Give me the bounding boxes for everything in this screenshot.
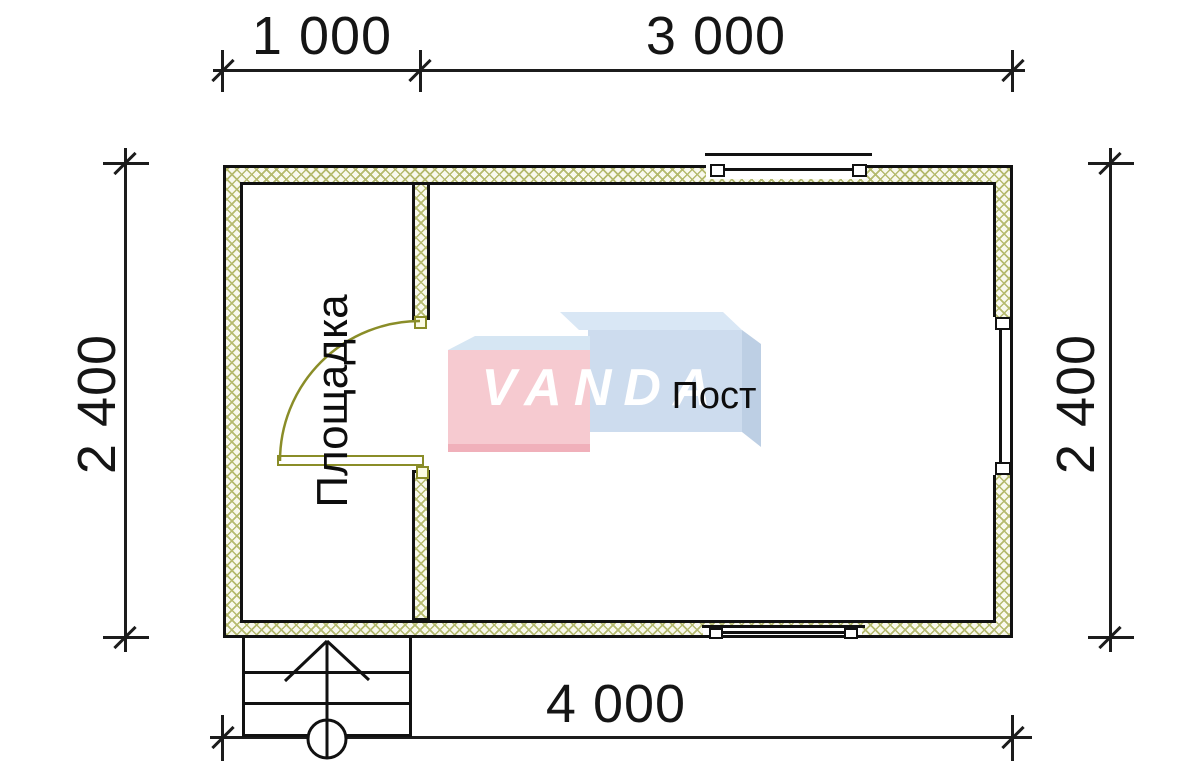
floor-plan-drawing: 1 000 3 000 2 400 2 400 4 000 VANDA — [0, 0, 1200, 772]
room-label-ploshchadka: Площадка — [309, 271, 357, 531]
room-label-post: Пост — [614, 372, 814, 420]
plan-symbols-overlay — [0, 0, 1200, 772]
stair-arrow-wing-right — [327, 641, 369, 680]
stair-arrow-wing-left — [285, 641, 327, 681]
